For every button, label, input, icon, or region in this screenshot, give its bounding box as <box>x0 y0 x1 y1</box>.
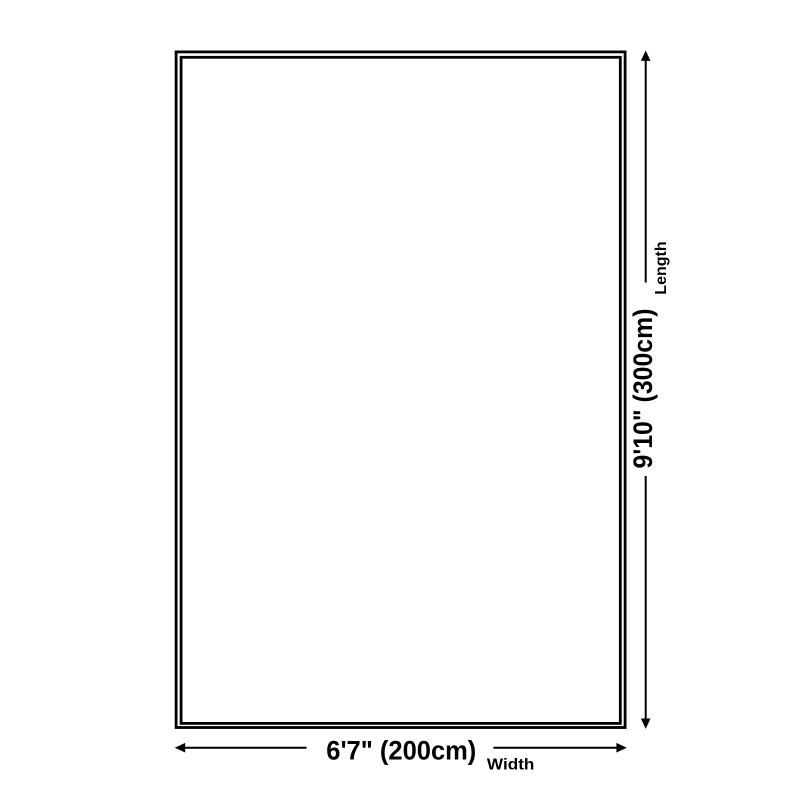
svg-text:Length: Length <box>653 241 670 294</box>
svg-text:Width: Width <box>487 757 535 774</box>
svg-text:6'7" (200cm): 6'7" (200cm) <box>326 736 476 766</box>
svg-text:9'10" (300cm): 9'10" (300cm) <box>628 309 658 469</box>
